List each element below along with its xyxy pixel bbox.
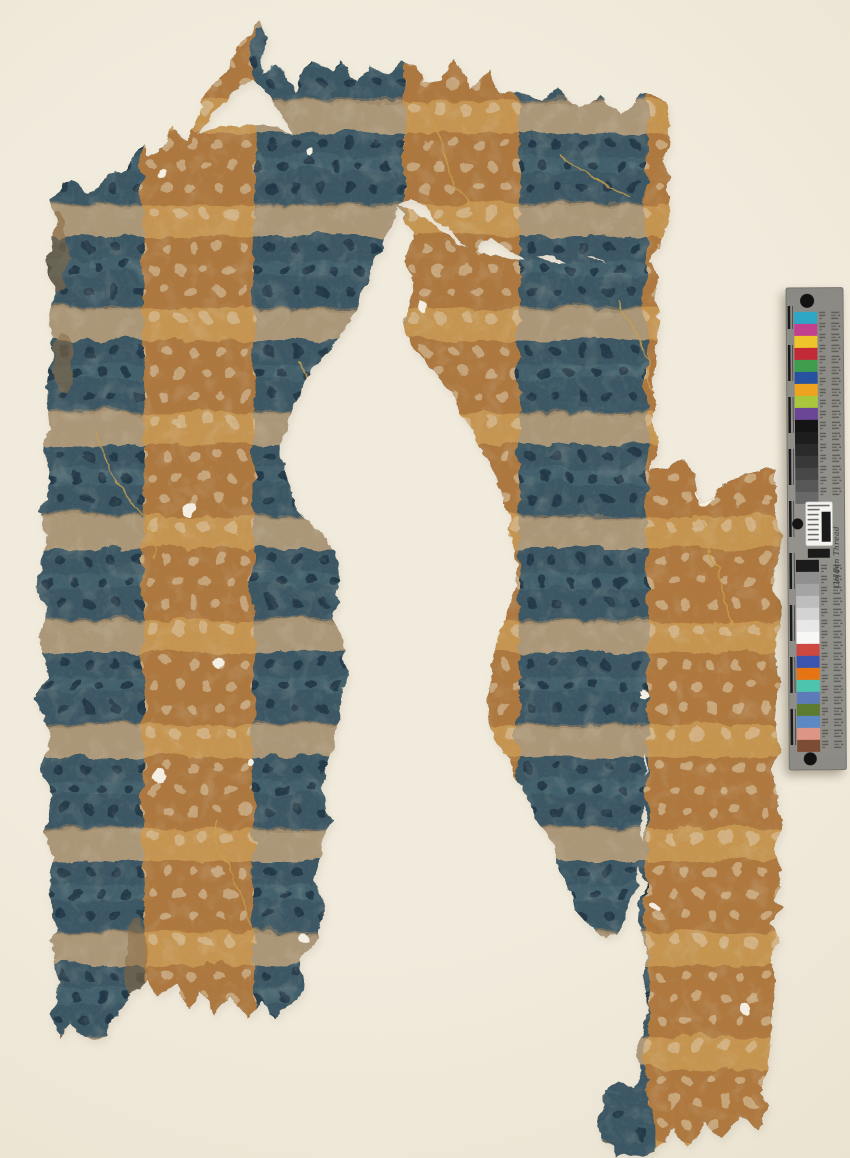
- color-calibration-bar: Golden Thread: [786, 288, 846, 770]
- color-patch: [795, 360, 818, 372]
- ruler-microtext-2: [821, 562, 843, 750]
- color-patch: [794, 336, 817, 348]
- ruler-microtext: [819, 310, 841, 498]
- color-patch: [795, 384, 818, 396]
- color-patch: [795, 456, 818, 468]
- color-patch: [794, 312, 817, 324]
- label-black-bar: [808, 549, 830, 558]
- color-patch: [797, 728, 820, 740]
- color-patch: [796, 560, 819, 572]
- color-patch: [797, 692, 820, 704]
- artifact-photograph: Golden Thread: [0, 0, 850, 1158]
- ruler-top-dot: [800, 294, 814, 308]
- color-patch: [796, 584, 819, 596]
- color-patch: [797, 716, 820, 728]
- color-patch: [796, 632, 819, 644]
- label-dot: [792, 518, 803, 529]
- color-patch: [795, 420, 818, 432]
- color-patch: [795, 372, 818, 384]
- color-patch: [796, 572, 819, 584]
- color-patch: [797, 704, 820, 716]
- color-patch: [796, 620, 819, 632]
- color-patch: [795, 432, 818, 444]
- color-patch: [795, 408, 818, 420]
- color-patch: [795, 444, 818, 456]
- color-patch: [796, 644, 819, 656]
- color-patch: [796, 596, 819, 608]
- photo-canvas: Golden Thread: [0, 0, 850, 1158]
- color-patch: [795, 396, 818, 408]
- color-patch: [794, 348, 817, 360]
- textile-fragment: [20, 0, 795, 1158]
- color-patch: [797, 740, 820, 752]
- color-patch: [797, 668, 820, 680]
- patch-column-bottom: [796, 560, 820, 752]
- color-patch: [795, 468, 818, 480]
- color-patch: [797, 656, 820, 668]
- color-patch: [794, 324, 817, 336]
- brand-text: Golden Thread: [832, 526, 841, 588]
- ruler-bottom-dot: [804, 752, 817, 765]
- color-patch: [796, 608, 819, 620]
- patch-column-top: [794, 312, 818, 504]
- color-patch: [795, 480, 818, 492]
- color-patch: [797, 680, 820, 692]
